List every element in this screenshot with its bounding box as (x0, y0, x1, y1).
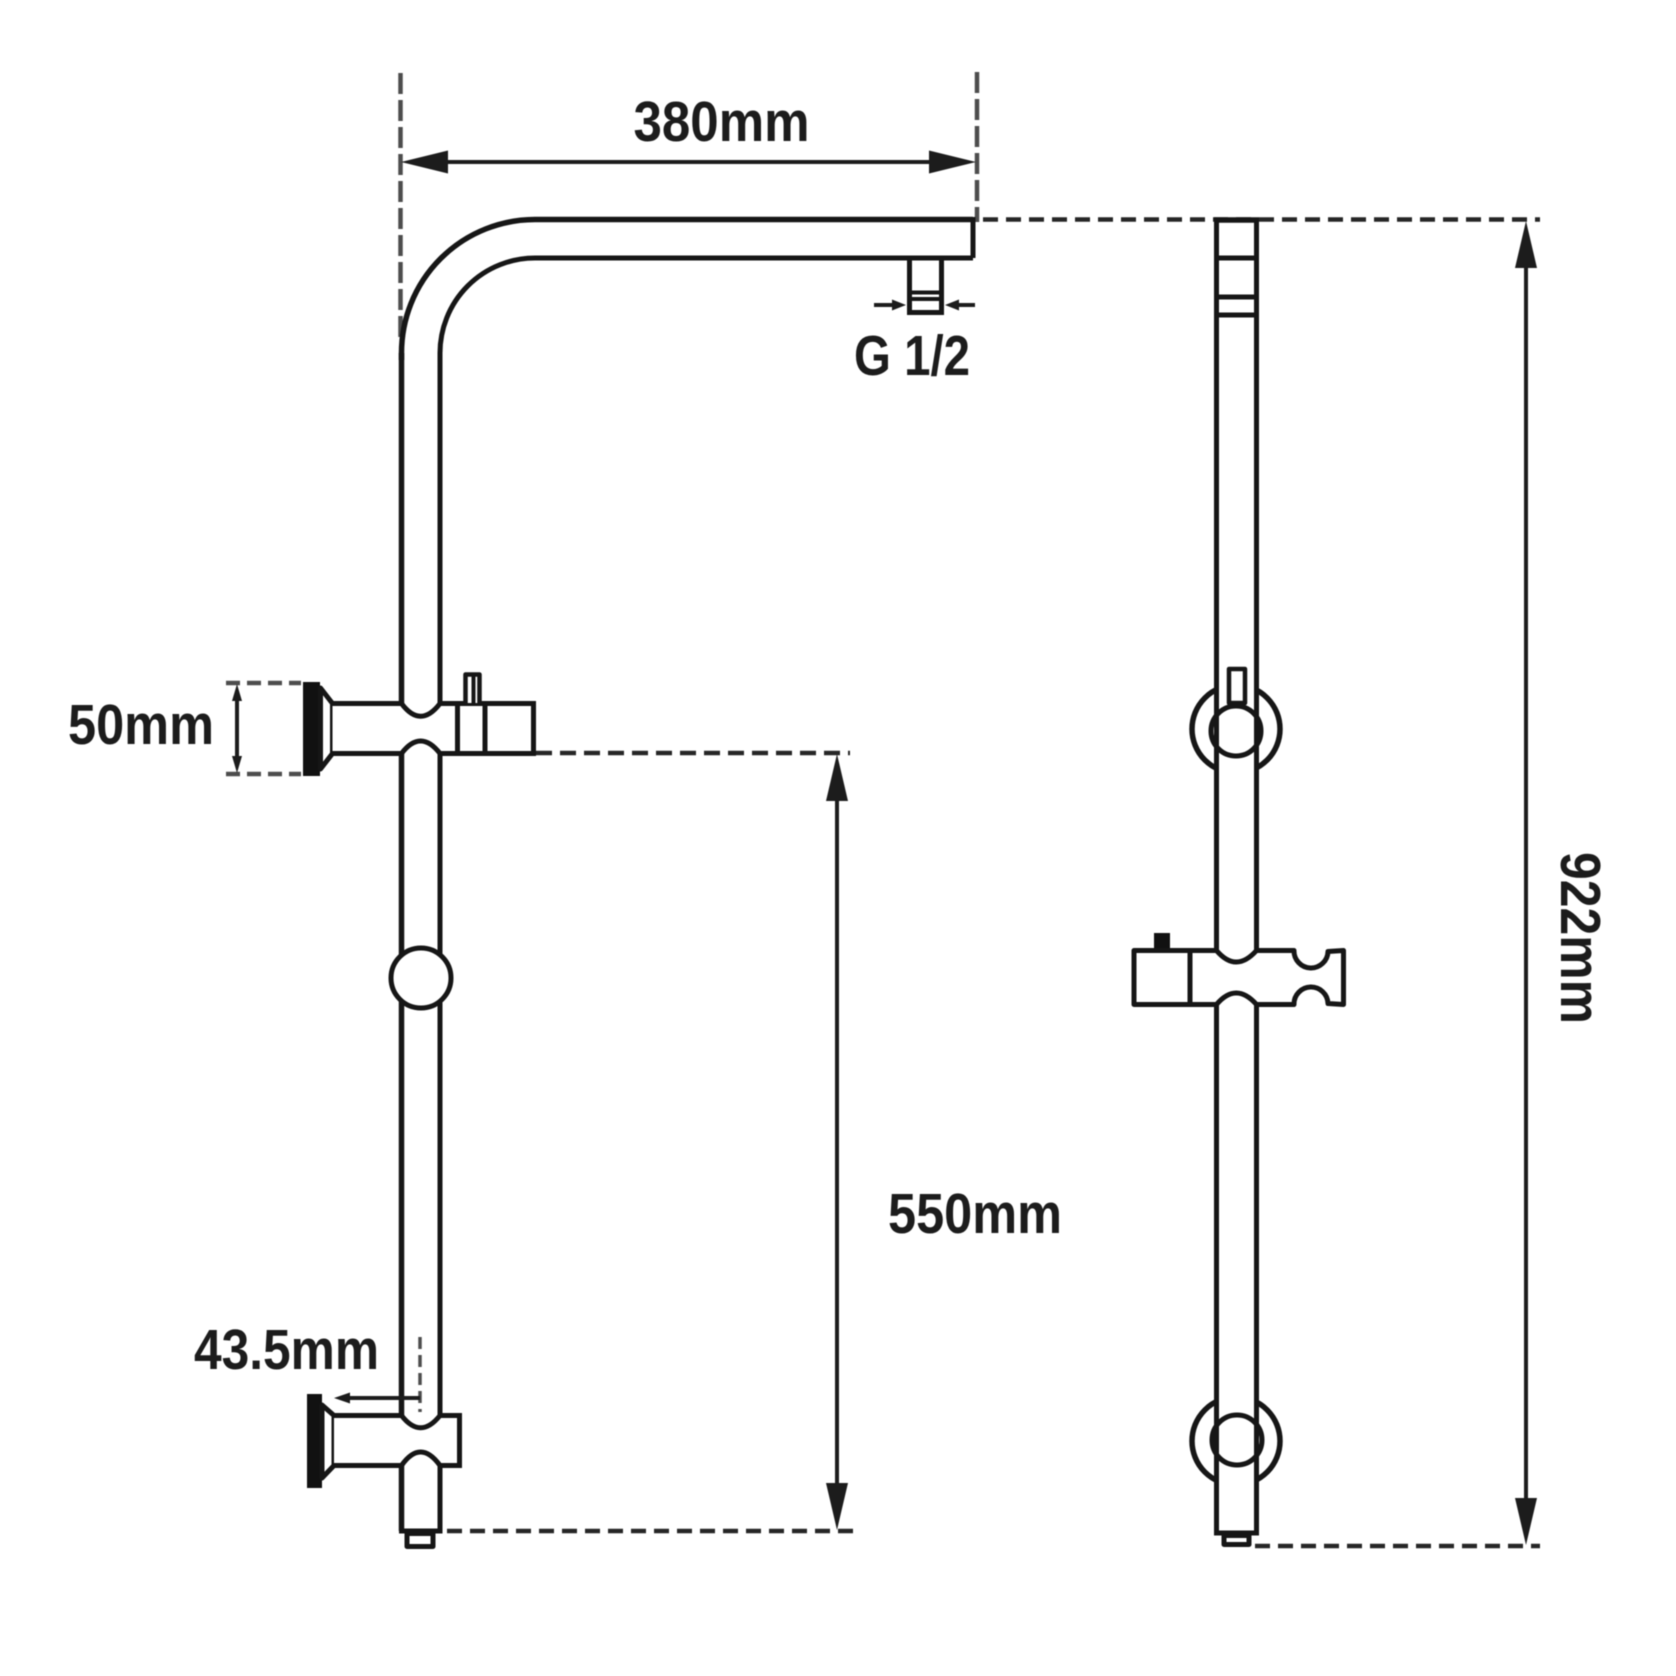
svg-text:550mm: 550mm (888, 1182, 1062, 1246)
svg-text:380mm: 380mm (634, 90, 810, 154)
svg-text:G 1/2: G 1/2 (854, 324, 970, 388)
svg-text:43.5mm: 43.5mm (194, 1318, 379, 1382)
svg-text:922mm: 922mm (1548, 852, 1612, 1024)
svg-text:50mm: 50mm (68, 693, 214, 757)
